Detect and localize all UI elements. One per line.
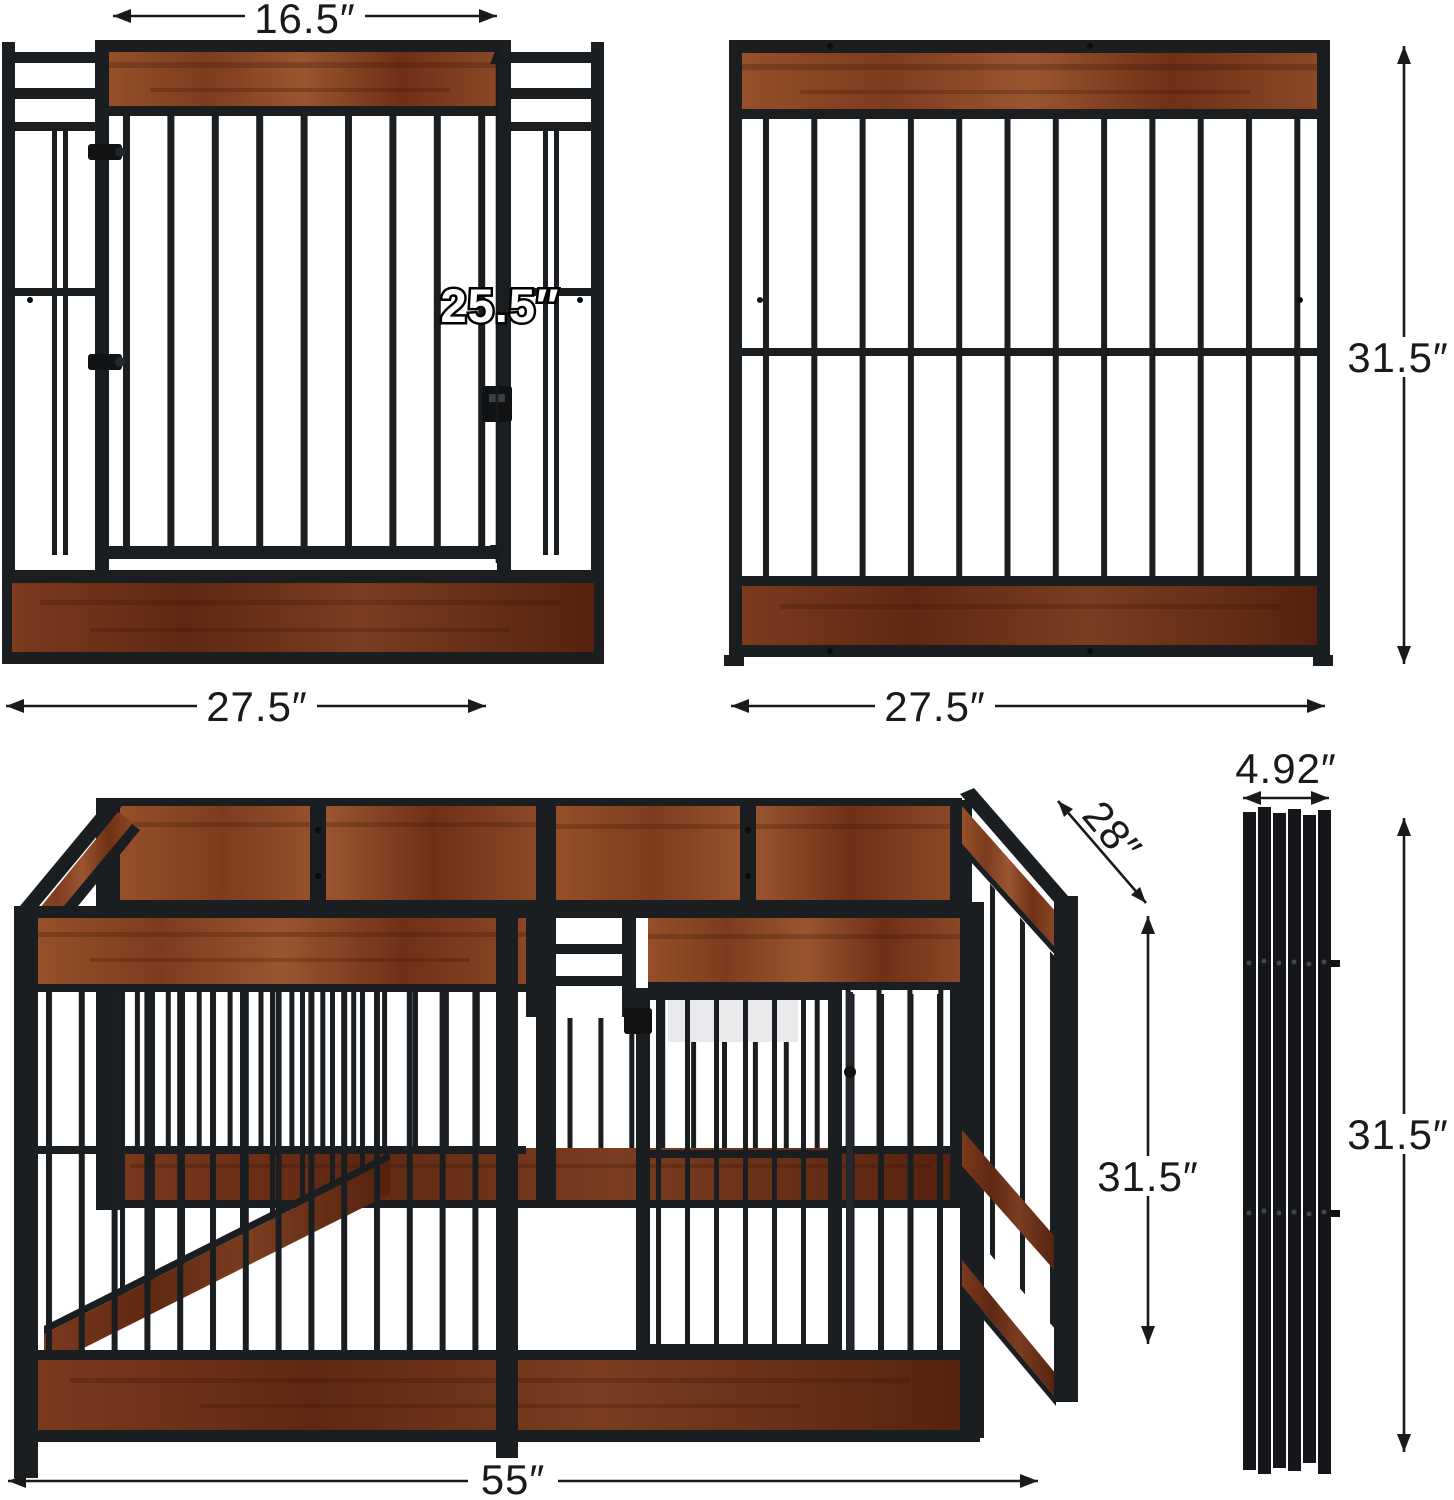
pen-front-center-post xyxy=(496,902,518,1478)
dim-stack-height-label: 31.5″ xyxy=(1347,1111,1449,1158)
dim-door-height-label: 25.5″ xyxy=(441,279,560,332)
panel-bottom-wood-plank xyxy=(742,586,1317,646)
dim-panel-height-label: 31.5″ xyxy=(1347,334,1449,381)
dim-pen-width-label: 55″ xyxy=(481,1456,546,1500)
panel-top-wood-plank xyxy=(742,53,1317,109)
view-door-panel xyxy=(2,40,604,664)
panel-bottom-wood-plank xyxy=(12,583,594,652)
dim-pen-depth-label: 28″ xyxy=(1074,792,1152,872)
view-assembled-pen xyxy=(14,788,1078,1478)
panel-left-post xyxy=(729,40,742,657)
pen-front-right-bars xyxy=(842,994,962,1360)
stack-bolt-bottom xyxy=(1330,1210,1340,1217)
product-dimension-diagram: 16.5″ 25.5″ 27.5″ 31.5″ 27.5″ 4.92″ 28″ xyxy=(0,0,1454,1500)
view-folded-panels xyxy=(1243,807,1340,1474)
panel-right-post xyxy=(1317,40,1330,657)
pen-front-wall xyxy=(14,902,984,1478)
dim-door-width-label: 16.5″ xyxy=(254,0,356,42)
dim-pen-height-label: 31.5″ xyxy=(1097,1153,1199,1200)
dim-stack-thickness-label: 4.92″ xyxy=(1235,745,1337,792)
pen-far-right-post xyxy=(1054,896,1078,1402)
pen-door-latch xyxy=(624,1008,652,1034)
dim-right-panel-width-label: 27.5″ xyxy=(884,683,986,730)
view-plain-panel xyxy=(724,40,1333,666)
door-bars xyxy=(115,114,491,552)
pen-front-left-wood-plank xyxy=(38,918,526,984)
dim-left-panel-width-label: 27.5″ xyxy=(206,683,308,730)
door-top-wood-plank xyxy=(109,52,497,109)
pen-door-bars xyxy=(650,1000,828,1344)
pen-door-latch-rod xyxy=(846,992,853,1354)
stack-bolt-top xyxy=(1330,960,1340,967)
pen-front-right-wood-plank xyxy=(648,918,962,982)
pen-front-left-bars xyxy=(38,992,526,1360)
pen-door-knob xyxy=(844,1066,856,1078)
pen-door xyxy=(624,988,856,1360)
pen-front-left-post xyxy=(14,906,38,1478)
diagram-canvas: 16.5″ 25.5″ 27.5″ 31.5″ 27.5″ 4.92″ 28″ xyxy=(0,0,1454,1500)
